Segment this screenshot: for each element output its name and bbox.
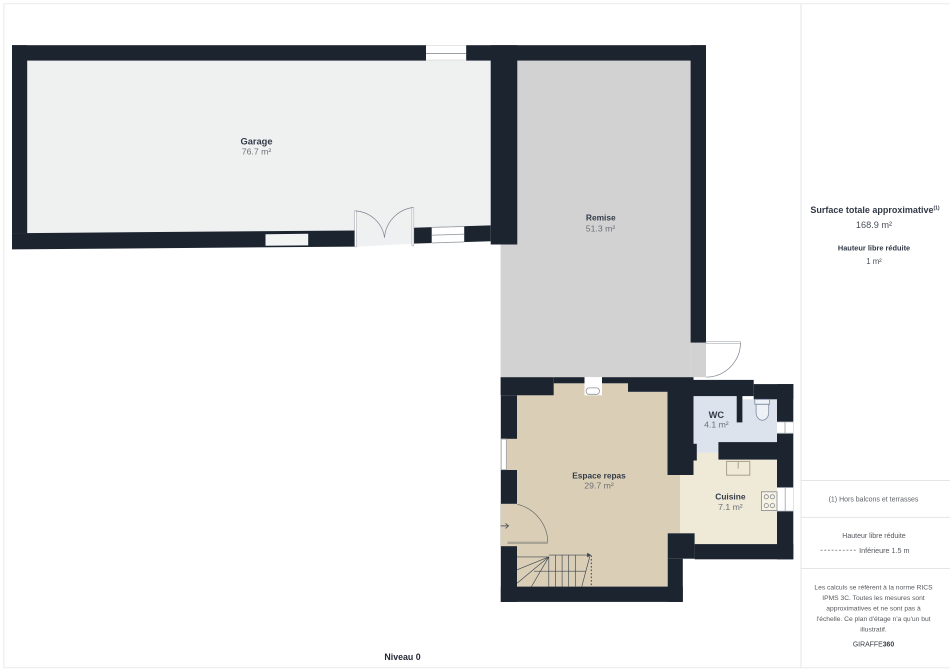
- svg-text:Hauteur libre réduite: Hauteur libre réduite: [842, 533, 906, 540]
- svg-text:WC: WC: [709, 410, 725, 420]
- svg-text:Hauteur libre réduite: Hauteur libre réduite: [838, 243, 910, 252]
- svg-text:Cuisine: Cuisine: [715, 492, 746, 502]
- svg-text:GIRAFFE360: GIRAFFE360: [853, 641, 895, 648]
- svg-text:Remise: Remise: [586, 212, 616, 222]
- svg-text:(1) Hors balcons et terrasses: (1) Hors balcons et terrasses: [829, 497, 919, 504]
- svg-text:IPMS 3C. Toutes les mesures so: IPMS 3C. Toutes les mesures sont: [822, 595, 925, 602]
- svg-text:Surface totale approximative(1: Surface totale approximative(1): [810, 205, 939, 215]
- svg-text:Les calculs se réfèrent à la n: Les calculs se réfèrent à la norme RICS: [814, 584, 933, 591]
- svg-text:Espace repas: Espace repas: [572, 471, 626, 481]
- svg-text:1 m²: 1 m²: [866, 257, 882, 266]
- svg-text:l'échelle. Ce plan d'étage n'a: l'échelle. Ce plan d'étage n'a qu'un but: [816, 616, 930, 623]
- svg-text:4.1 m²: 4.1 m²: [704, 420, 729, 430]
- svg-text:51.3 m²: 51.3 m²: [586, 223, 616, 233]
- svg-text:7.1 m²: 7.1 m²: [718, 502, 743, 512]
- svg-text:29.7 m²: 29.7 m²: [584, 480, 614, 490]
- svg-text:approximatives et ne sont pas: approximatives et ne sont pas à: [826, 605, 921, 612]
- svg-text:Garage: Garage: [240, 137, 272, 147]
- svg-text:Niveau 0: Niveau 0: [384, 652, 420, 662]
- svg-text:168.9 m²: 168.9 m²: [856, 220, 892, 230]
- svg-text:illustratif.: illustratif.: [860, 626, 887, 633]
- svg-text:Inférieure 1.5 m: Inférieure 1.5 m: [859, 546, 909, 555]
- svg-text:76.7 m²: 76.7 m²: [242, 147, 272, 157]
